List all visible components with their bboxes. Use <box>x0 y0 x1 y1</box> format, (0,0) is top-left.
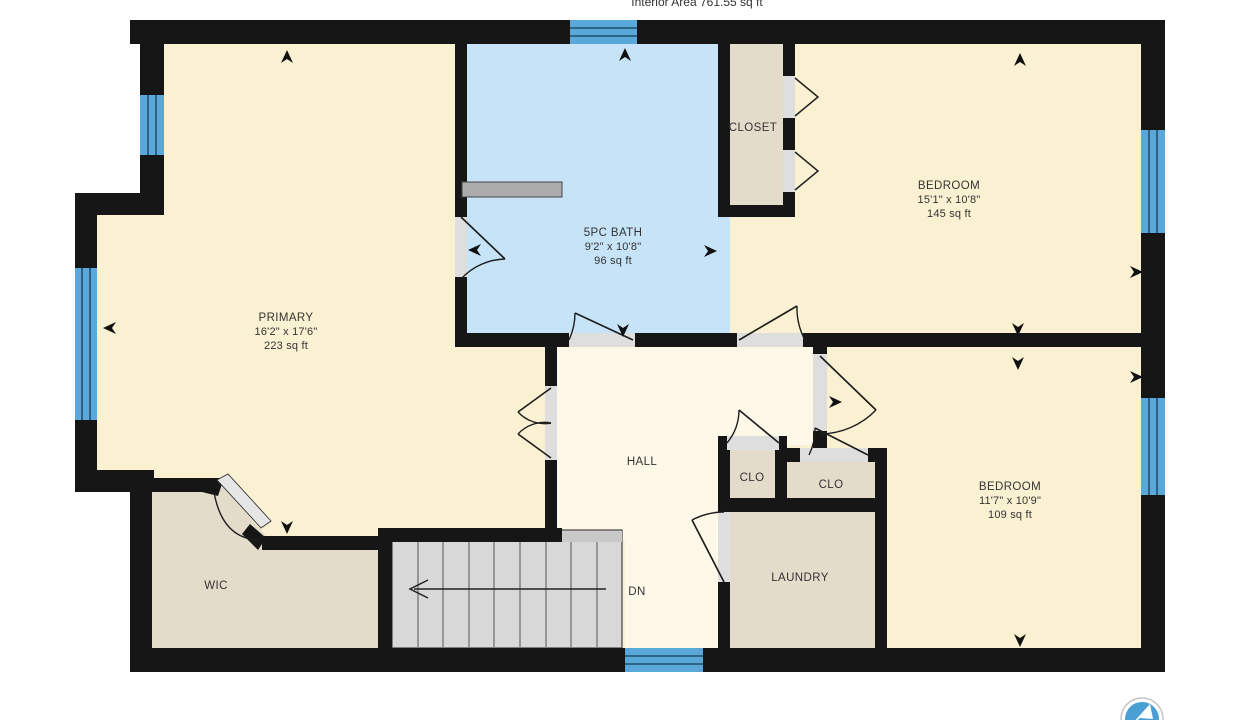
room-area-bath: 96 sq ft <box>594 255 632 267</box>
stair-header-strip <box>562 531 622 542</box>
room-label-hall: HALL <box>627 456 658 468</box>
room-area-bedroom1: 145 sq ft <box>927 208 971 220</box>
floor-plan-svg: Interior Area 761.55 sq ft PRIMARY 16'2"… <box>0 0 1240 720</box>
floor-plan-page: Interior Area 761.55 sq ft PRIMARY 16'2"… <box>0 0 1240 720</box>
window-top-bath <box>570 20 637 44</box>
room-label-wic: WIC <box>204 580 228 592</box>
room-label-bedroom1: BEDROOM <box>918 180 980 192</box>
room-dims-bedroom2: 11'7" x 10'9" <box>979 495 1041 507</box>
window-bottom-hall <box>625 648 703 672</box>
bath-vanity-counter <box>462 182 562 197</box>
room-label-bath: 5PC BATH <box>584 227 643 239</box>
room-area-primary: 223 sq ft <box>264 340 308 352</box>
interior-area-title: Interior Area 761.55 sq ft <box>631 0 763 9</box>
room-label-clo1: CLO <box>740 472 765 484</box>
room-label-closet: CLOSET <box>729 122 777 134</box>
outside-mask-upper-left <box>0 0 140 193</box>
window-right-bedroom2 <box>1141 398 1165 495</box>
room-dims-bath: 9'2" x 10'8" <box>585 241 642 253</box>
room-label-laundry: LAUNDRY <box>771 572 829 584</box>
staircase <box>392 530 622 648</box>
room-label-primary: PRIMARY <box>259 312 314 324</box>
window-right-bedroom1 <box>1141 130 1165 233</box>
room-dims-bedroom1: 15'1" x 10'8" <box>918 194 981 206</box>
outside-mask-lower-left <box>0 492 130 720</box>
window-left-upper <box>140 95 164 155</box>
room-dims-primary: 16'2" x 17'6" <box>255 326 318 338</box>
room-area-bedroom2: 109 sq ft <box>988 509 1032 521</box>
room-label-clo2: CLO <box>819 479 844 491</box>
room-label-bedroom2: BEDROOM <box>979 481 1041 493</box>
stairs-dn-label: DN <box>628 586 645 598</box>
window-left-primary <box>75 268 97 420</box>
